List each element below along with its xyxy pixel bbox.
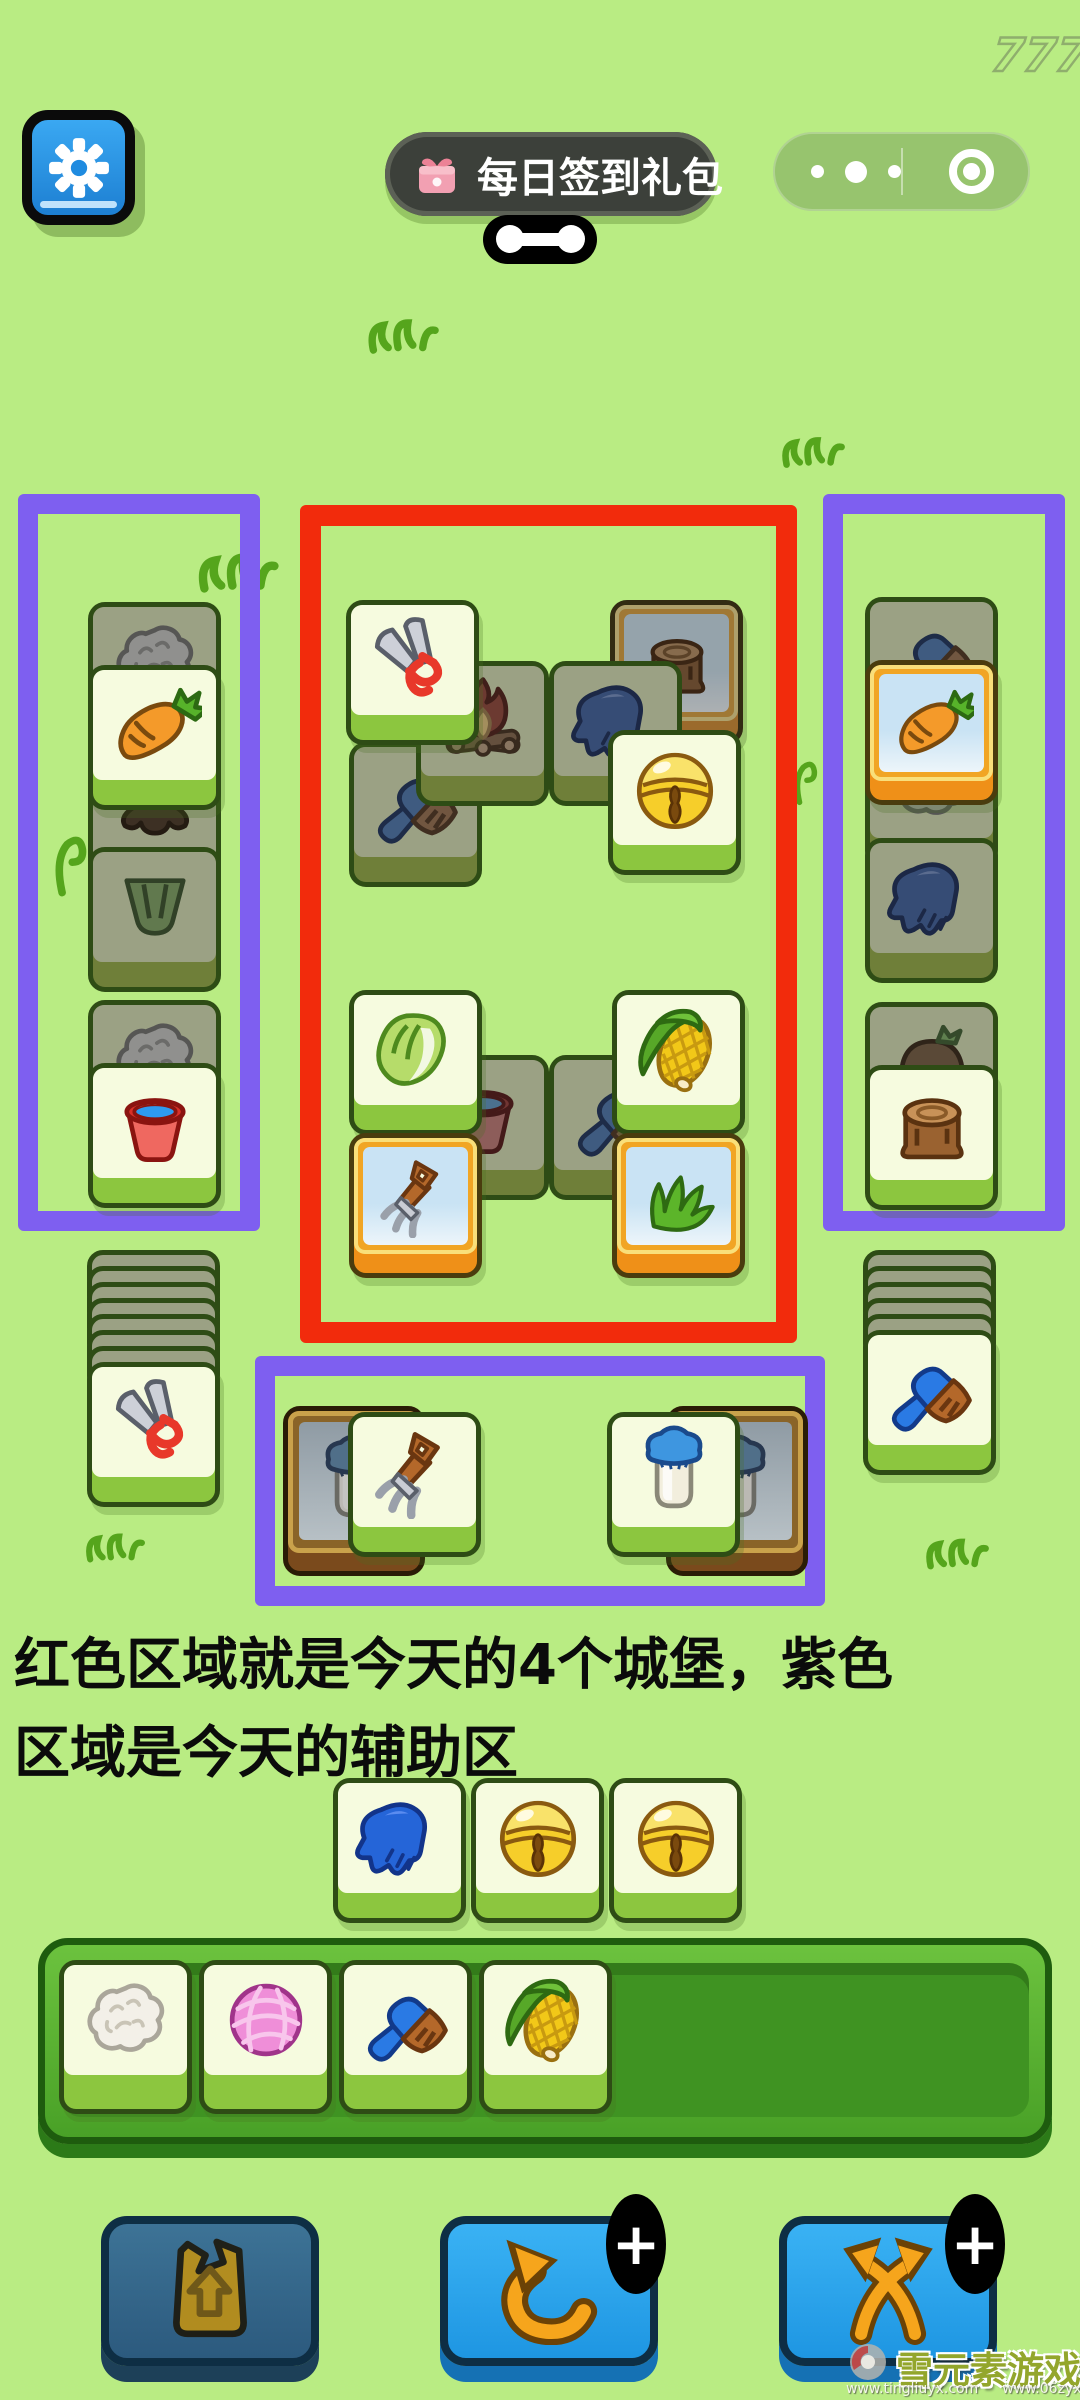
tile-carrot[interactable] — [865, 660, 998, 805]
tile-bucket[interactable] — [88, 1063, 221, 1208]
miniprogram-capsule — [773, 132, 1030, 211]
watermark-url-1: www.tingliuyx.com — [846, 2381, 978, 2397]
tile-glove[interactable] — [333, 1778, 466, 1923]
moveout-button — [101, 2216, 319, 2366]
plus-badge[interactable]: + — [945, 2194, 1005, 2294]
watermark-logo — [846, 2340, 890, 2384]
tile-carrot[interactable] — [88, 665, 221, 810]
gift-icon — [411, 149, 463, 199]
annotation-text: 红色区域就是今天的4个城堡，紫色 区域是今天的辅助区 — [14, 1622, 1034, 1798]
tile-bell[interactable] — [608, 730, 741, 875]
tile-cabbage[interactable] — [349, 990, 482, 1135]
tile-brush[interactable] — [339, 1960, 472, 2114]
watermark-number: 777 — [989, 28, 1080, 82]
tile-bell[interactable] — [471, 1778, 604, 1923]
capsule-divider — [901, 148, 903, 195]
tile-milk[interactable] — [607, 1412, 740, 1557]
game-screen: 777 每日签到礼包 红色区域就是今天的4个城堡，紫色 区域是 — [0, 0, 1080, 2400]
tile-glove — [865, 838, 998, 983]
tile-stump[interactable] — [865, 1065, 998, 1210]
gear-button-highlight — [40, 201, 117, 208]
record-icon[interactable] — [949, 149, 994, 194]
grass-tuft — [366, 318, 440, 355]
more-dots-icon[interactable] — [811, 132, 901, 211]
gear-icon — [45, 134, 113, 202]
settings-button[interactable] — [22, 110, 135, 225]
grass-tuft — [924, 1534, 990, 1574]
bone-handle-icon — [483, 215, 597, 264]
daily-signin-button[interactable]: 每日签到礼包 — [385, 132, 717, 216]
tile-yarn[interactable] — [199, 1960, 332, 2114]
tile-corn[interactable] — [479, 1960, 612, 2114]
tile-shears[interactable] — [346, 600, 479, 745]
tile-brush[interactable] — [863, 1330, 996, 1475]
plus-badge[interactable]: + — [606, 2194, 666, 2294]
tile-bell[interactable] — [609, 1778, 742, 1923]
tile-pitchfork[interactable] — [348, 1412, 481, 1557]
daily-signin-label: 每日签到礼包 — [477, 144, 723, 204]
tile-grass[interactable] — [612, 1133, 745, 1278]
watermark-url-2: www.06zyx.com — [1002, 2381, 1080, 2397]
tile-corn[interactable] — [612, 990, 745, 1135]
tile-shears[interactable] — [87, 1362, 220, 1507]
bag-icon — [154, 2233, 266, 2349]
annotation-line1: 红色区域就是今天的4个城堡，紫色 — [14, 1622, 1034, 1710]
watermark-urls: www.tingliuyx.com www.06zyx.com — [846, 2381, 1080, 2397]
tile-cotton[interactable] — [59, 1960, 192, 2114]
tile-leafbunch — [88, 847, 221, 992]
shuffle-icon — [832, 2233, 944, 2349]
undo-button[interactable]: + — [440, 2216, 658, 2366]
grass-tuft — [780, 436, 846, 469]
tile-pitchfork[interactable] — [349, 1133, 482, 1278]
grass-tuft — [84, 1528, 146, 1568]
undo-icon — [493, 2233, 605, 2349]
